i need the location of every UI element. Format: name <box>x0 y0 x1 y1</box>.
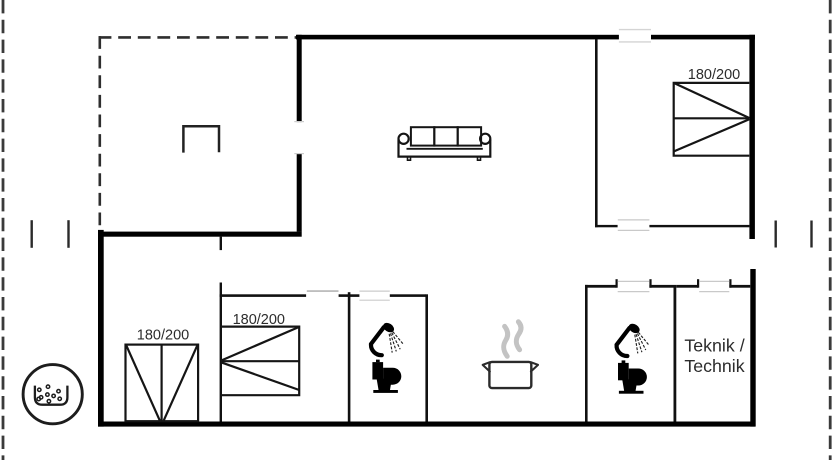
svg-text:Technik: Technik <box>684 356 744 376</box>
svg-text:Teknik /: Teknik / <box>684 335 744 355</box>
svg-text:180/200: 180/200 <box>233 312 285 328</box>
svg-text:180/200: 180/200 <box>137 328 189 344</box>
svg-text:180/200: 180/200 <box>688 67 740 83</box>
